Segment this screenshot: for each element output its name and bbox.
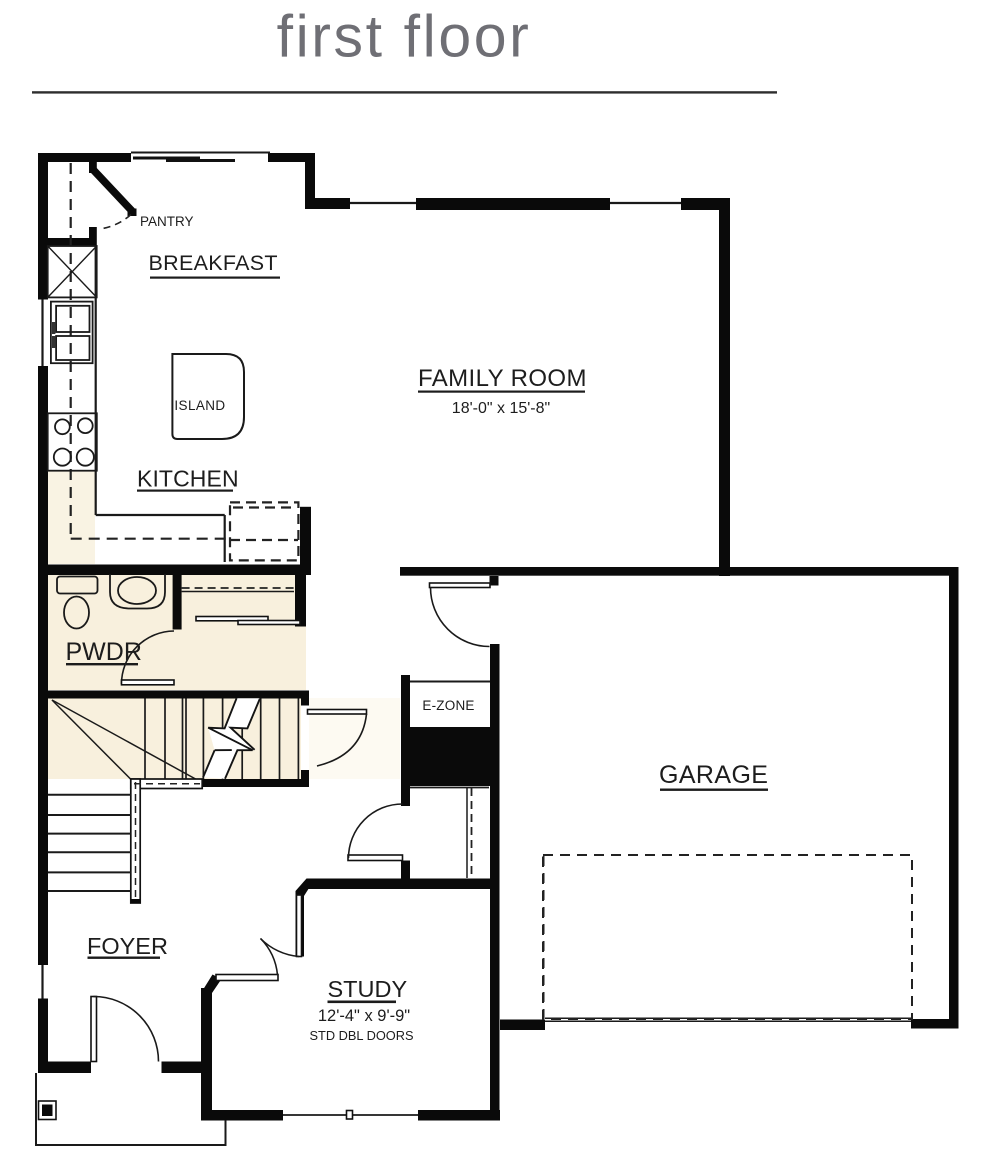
svg-text:BREAKFAST: BREAKFAST (149, 251, 278, 275)
svg-text:KITCHEN: KITCHEN (137, 466, 239, 492)
svg-text:18'-0" x 15'-8": 18'-0" x 15'-8" (452, 400, 550, 417)
svg-text:E-ZONE: E-ZONE (422, 698, 474, 713)
svg-text:PANTRY: PANTRY (140, 214, 194, 229)
svg-text:PWDR: PWDR (66, 638, 142, 666)
svg-text:ISLAND: ISLAND (174, 398, 225, 413)
svg-text:first floor: first floor (277, 4, 532, 70)
svg-text:STD DBL DOORS: STD DBL DOORS (309, 1028, 413, 1043)
svg-text:12'-4" x 9'-9": 12'-4" x 9'-9" (318, 1007, 410, 1025)
svg-text:STUDY: STUDY (328, 976, 408, 1002)
svg-text:GARAGE: GARAGE (659, 761, 768, 789)
svg-text:FOYER: FOYER (87, 933, 168, 959)
svg-text:FAMILY ROOM: FAMILY ROOM (418, 365, 587, 392)
